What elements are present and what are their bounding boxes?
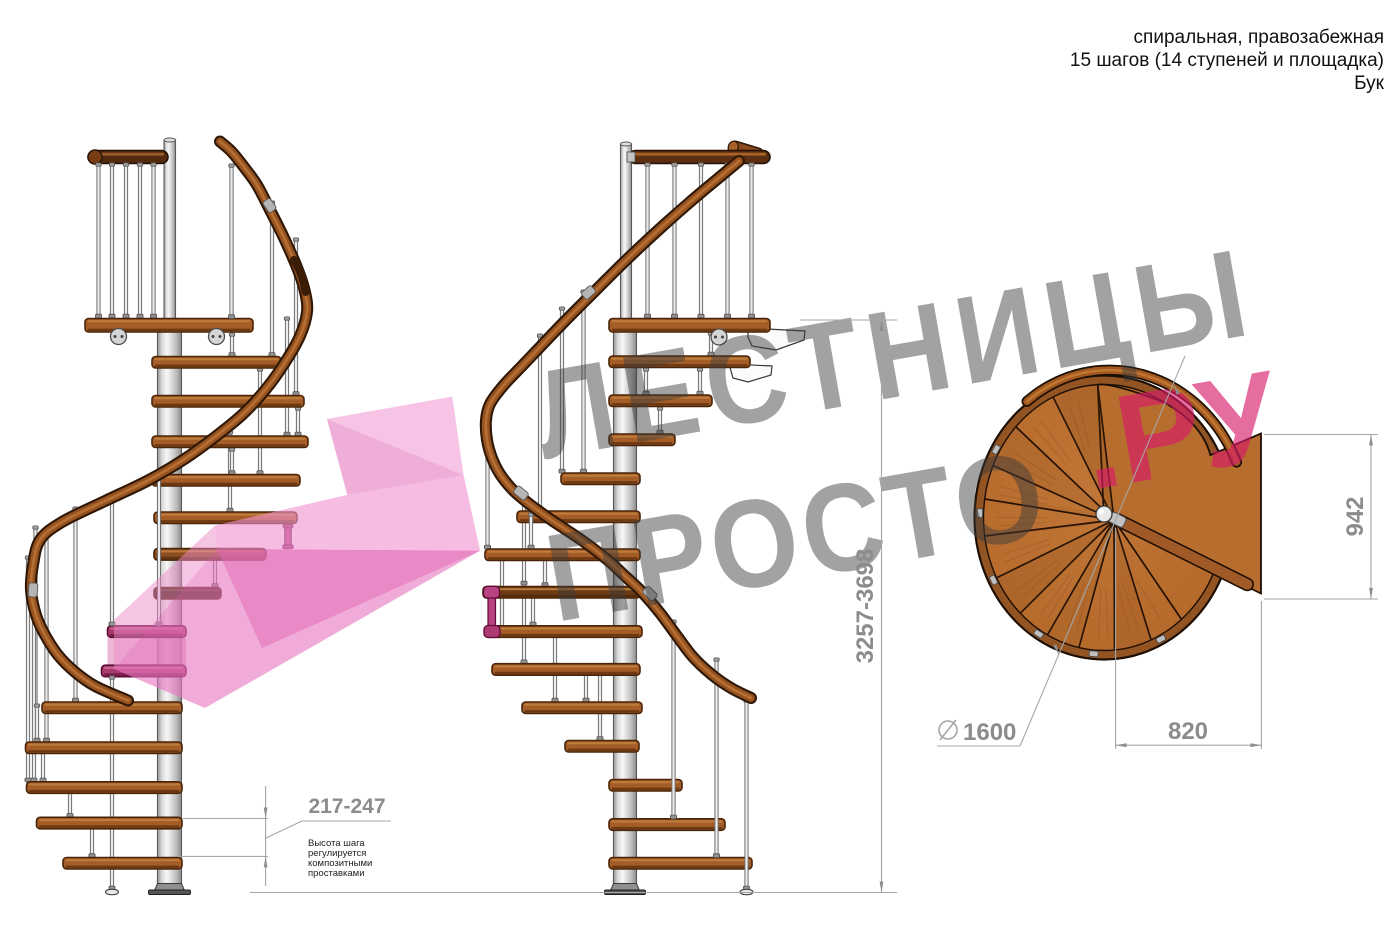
svg-text:942: 942 [1342, 496, 1369, 536]
svg-text:15 шагов (14 ступеней и площад: 15 шагов (14 ступеней и площадка) [1070, 50, 1384, 71]
svg-text:Бук: Бук [1354, 73, 1385, 94]
svg-text:1600: 1600 [963, 719, 1016, 746]
svg-text:820: 820 [1168, 718, 1208, 745]
svg-text:3257-3698: 3257-3698 [852, 549, 879, 664]
svg-text:спиральная, правозабежная: спиральная, правозабежная [1134, 27, 1384, 48]
svg-text:Высота шагарегулируетсякомпози: Высота шагарегулируетсякомпозитнымипрост… [308, 838, 372, 879]
svg-text:217-247: 217-247 [308, 795, 385, 818]
